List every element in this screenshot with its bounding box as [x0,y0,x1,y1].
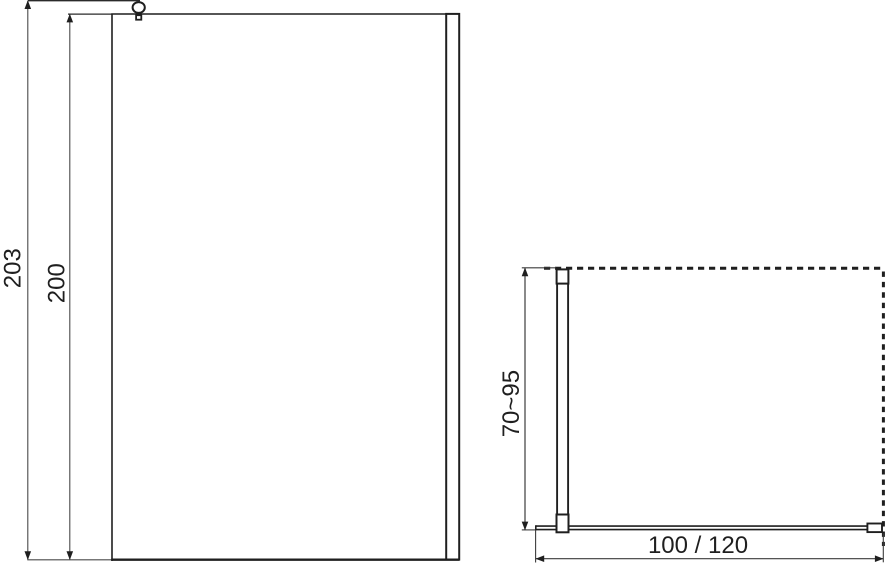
svg-text:200: 200 [44,263,71,303]
svg-text:203: 203 [0,248,27,288]
svg-text:100 / 120: 100 / 120 [648,532,748,559]
svg-text:70~95: 70~95 [498,370,525,437]
